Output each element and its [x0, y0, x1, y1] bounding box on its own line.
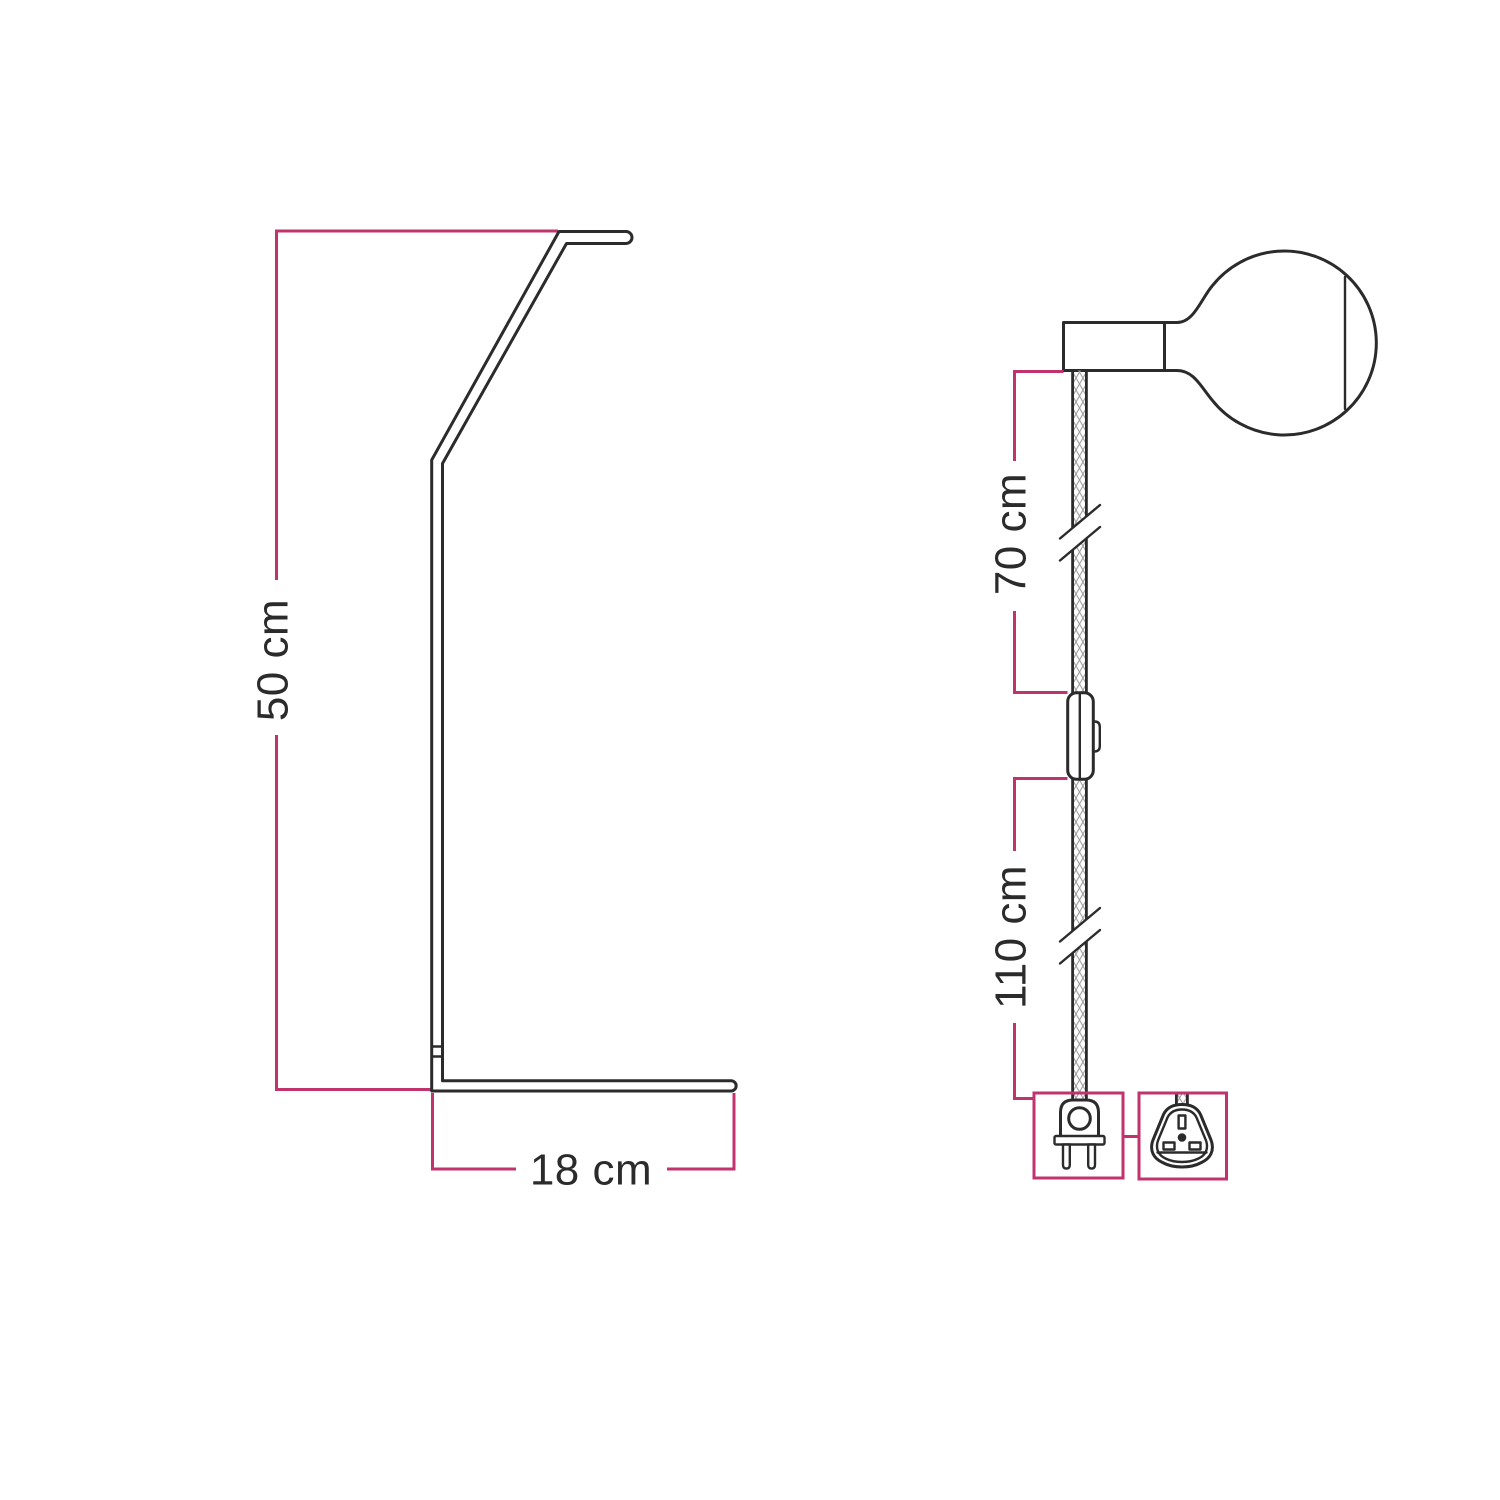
- cable-lower-dimension: 110 cm: [987, 779, 1068, 1099]
- stand-joint-mark: [432, 1047, 443, 1057]
- stand-depth-dimension: 18 cm: [433, 1093, 735, 1195]
- cable-lower-label: 110 cm: [987, 865, 1036, 1009]
- euro-plug-pin-right: [1088, 1145, 1095, 1169]
- stand-height-dimension-line: [277, 231, 559, 1090]
- dimensions-diagram: 50 cm 18 cm: [0, 0, 1500, 1500]
- inline-switch-icon: [1068, 693, 1100, 780]
- pendant-figure: 70 cm 110 cm: [987, 251, 1377, 1179]
- stand-height-dimension: 50 cm: [249, 231, 559, 1090]
- euro-plug-pin-left: [1063, 1145, 1070, 1169]
- diagram-canvas: 50 cm 18 cm: [0, 0, 1500, 1500]
- stand-height-label: 50 cm: [249, 599, 298, 721]
- stand-depth-label: 18 cm: [530, 1146, 652, 1195]
- plug-options: [1034, 1093, 1227, 1179]
- uk-plug-icon: [1152, 1095, 1213, 1168]
- cable-upper-dimension: 70 cm: [987, 372, 1068, 693]
- cable-upper-label: 70 cm: [987, 473, 1036, 595]
- stand-profile-icon: [432, 232, 736, 1092]
- stand-figure: 50 cm 18 cm: [249, 231, 737, 1195]
- lamp-socket-icon: [1064, 323, 1165, 371]
- uk-plug-center-dot: [1178, 1133, 1187, 1142]
- euro-plug-icon: [1055, 1100, 1105, 1169]
- euro-plug-face: [1055, 1136, 1105, 1145]
- euro-plug-body: [1061, 1100, 1099, 1138]
